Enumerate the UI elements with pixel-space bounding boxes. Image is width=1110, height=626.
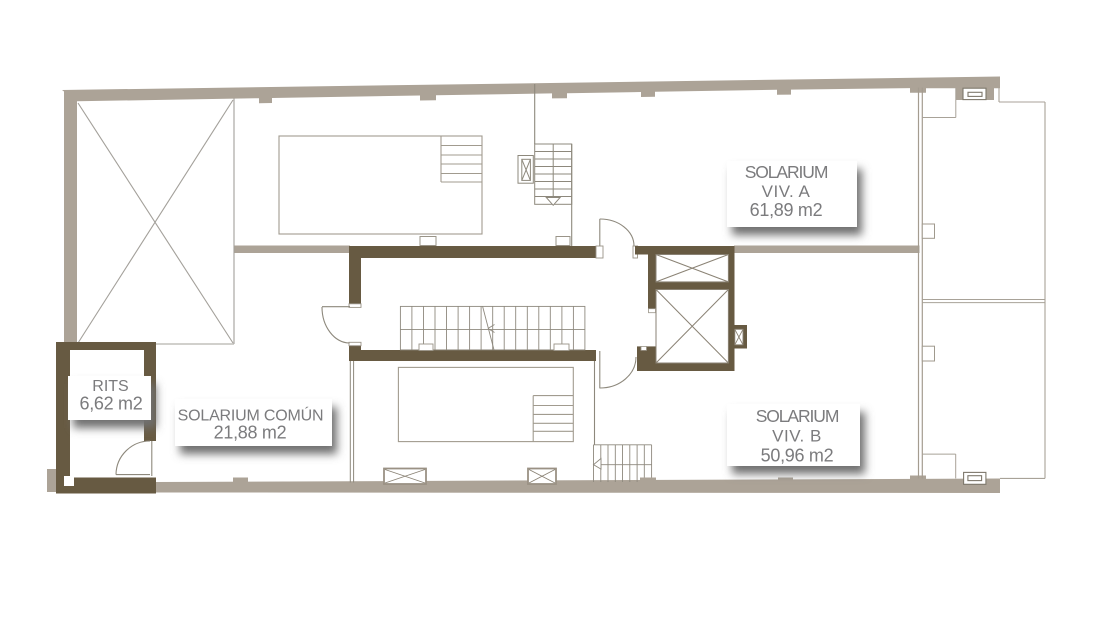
svg-text:VIV. B: VIV. B: [772, 427, 822, 446]
svg-text:SOLARIUM: SOLARIUM: [756, 406, 839, 426]
svg-text:VIV. A: VIV. A: [762, 182, 811, 201]
svg-text:61,89 m2: 61,89 m2: [750, 200, 823, 220]
svg-text:50,96 m2: 50,96 m2: [761, 446, 834, 466]
svg-text:RITS: RITS: [92, 378, 128, 395]
svg-text:SOLARIUM: SOLARIUM: [745, 162, 828, 182]
svg-text:21,88 m2: 21,88 m2: [214, 423, 287, 443]
svg-text:6,62 m2: 6,62 m2: [80, 394, 143, 414]
